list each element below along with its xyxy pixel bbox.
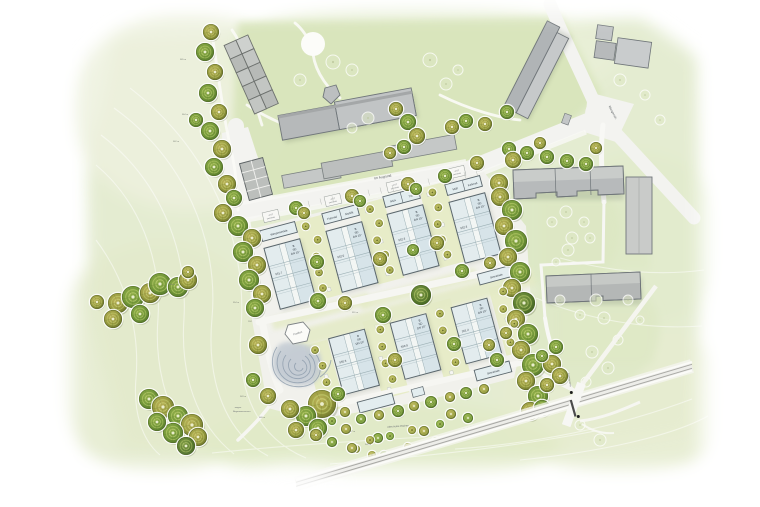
svg-text:549 m: 549 m bbox=[240, 396, 246, 398]
svg-text:564 m: 564 m bbox=[182, 114, 188, 116]
svg-text:565 m: 565 m bbox=[180, 59, 186, 61]
svg-text:546 m: 546 m bbox=[365, 444, 371, 446]
svg-text:562 m: 562 m bbox=[173, 141, 179, 143]
svg-text:554 m: 554 m bbox=[233, 302, 239, 304]
svg-text:556 m: 556 m bbox=[169, 284, 175, 286]
svg-text:551 m: 551 m bbox=[352, 312, 358, 314]
svg-text:wegen: wegen bbox=[235, 407, 242, 409]
svg-text:Regenwasservers.: Regenwasservers. bbox=[233, 410, 252, 413]
svg-text:548 m: 548 m bbox=[259, 417, 265, 419]
svg-text:547 m: 547 m bbox=[349, 431, 355, 433]
